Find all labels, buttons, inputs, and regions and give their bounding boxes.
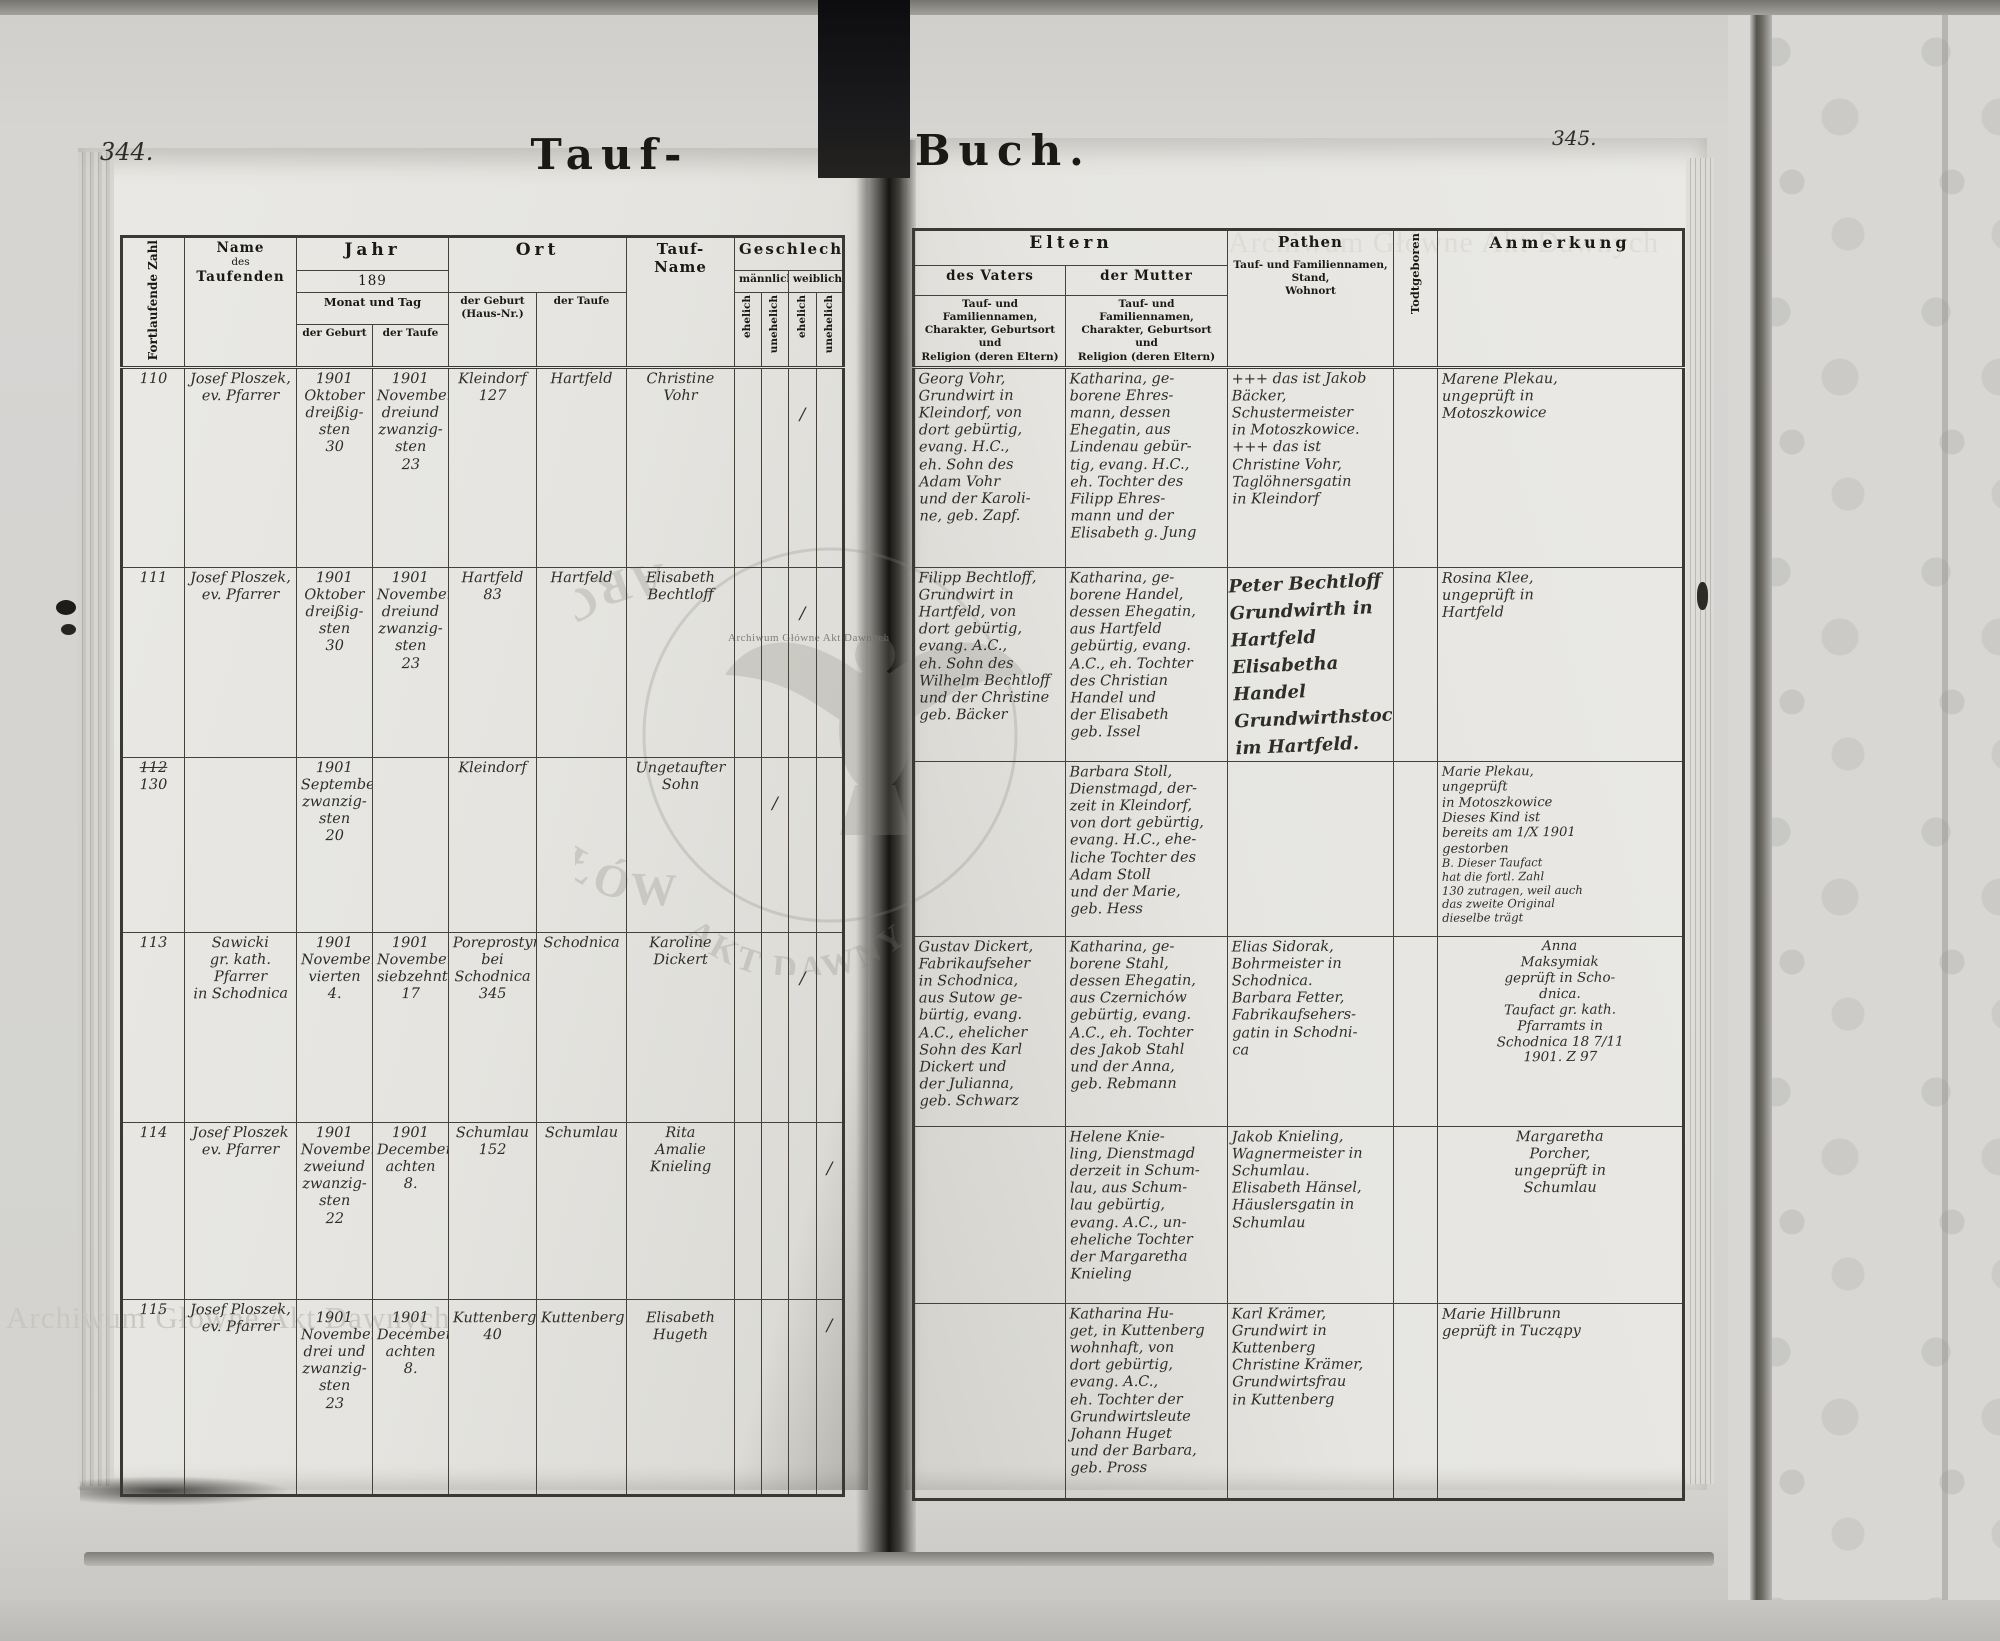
cell-ort-taufe: Schumlau	[537, 1123, 627, 1300]
right-page-number: 345.	[1552, 126, 1597, 150]
cell-ort-taufe: Schodnica	[537, 933, 627, 1123]
cell-vater: Filipp Bechtloff, Grundwirt in Hartfeld,…	[914, 567, 1066, 761]
cell-m-unehelich	[762, 933, 789, 1123]
cell-pathen: Karl Krämer, Grundwirt in Kuttenberg Chr…	[1228, 1303, 1394, 1499]
col-header-geburt-datum: der Geburt	[297, 325, 373, 368]
cell-w-ehelich: /	[789, 368, 817, 568]
table-row: 112 130 1901 September zwanzig- sten 20 …	[122, 758, 844, 933]
scan-edge-line	[1750, 0, 1772, 1641]
table-row: Barbara Stoll, Dienstmagd, der- zeit in …	[914, 761, 1684, 936]
table-row: Helene Knie- ling, Dienstmagd derzeit in…	[914, 1126, 1684, 1303]
cell-name: Josef Ploszek, ev. Pfarrer	[185, 568, 297, 758]
cell-todtgeboren	[1394, 367, 1438, 567]
cell-anmerkung: Marie Hillbrunn geprüft in Tucząpy	[1438, 1303, 1684, 1499]
cell-w-ehelich	[789, 1300, 817, 1496]
scan-bottom-band	[0, 1600, 2000, 1641]
left-page-edges	[78, 152, 114, 1486]
cell-anmerkung: Anna Maksymiak geprüft in Scho- dnica. T…	[1438, 936, 1684, 1126]
table-row: Katharina Hu- get, in Kuttenberg wohnhaf…	[914, 1303, 1684, 1499]
cell-ort-taufe: Hartfeld	[537, 568, 627, 758]
cell-w-unehelich	[817, 933, 844, 1123]
cell-taufname: Elisabeth Hugeth	[627, 1300, 735, 1496]
table-row: 111 Josef Ploszek, ev. Pfarrer 1901 Okto…	[122, 568, 844, 758]
cell-number: 114	[122, 1123, 185, 1300]
cell-geburt-datum: 1901 November zweiund zwanzig- sten 22	[297, 1123, 373, 1300]
cell-name: Sawicki gr. kath. Pfarrer in Schodnica	[185, 933, 297, 1123]
book-title-left: Tauf-	[500, 130, 720, 179]
cell-mutter: Katharina, ge- borene Ehres- mann, desse…	[1066, 367, 1228, 567]
cell-geburt-datum: 1901 Oktober dreißig- sten 30	[297, 368, 373, 568]
col-header-name: Name des Taufenden	[185, 237, 297, 368]
book-title-right: Buch.	[915, 126, 1135, 175]
col-header-maennlich: männlich	[735, 271, 789, 293]
cell-anmerkung: Margaretha Porcher, ungeprüft in Schumla…	[1438, 1126, 1684, 1303]
cell-anmerkung: Marie Plekau, ungeprüft in Motoszkowice …	[1438, 761, 1684, 936]
cell-vater: Gustav Dickert, Fabrikaufseher in Schodn…	[914, 936, 1066, 1126]
col-header-pathen: Pathen Tauf- und Familiennamen, Stand, W…	[1228, 230, 1394, 368]
col-header-w-ehelich: ehelich	[789, 293, 817, 368]
col-header-mutter-sub: Tauf- und Familiennamen, Charakter, Gebu…	[1066, 296, 1228, 368]
cell-name: Josef Ploszek, ev. Pfarrer	[185, 1300, 297, 1496]
cell-m-unehelich: /	[762, 758, 789, 933]
cell-todtgeboren	[1394, 567, 1438, 761]
register-table-right: Eltern Pathen Tauf- und Familiennamen, S…	[912, 228, 1685, 1501]
cell-name	[185, 758, 297, 933]
cell-taufe-datum	[373, 758, 449, 933]
right-page-edges	[1686, 158, 1714, 1484]
ink-blot	[56, 600, 76, 615]
cell-m-ehelich	[735, 368, 762, 568]
cell-mutter: Katharina, ge- borene Handel, dessen Ehe…	[1066, 567, 1228, 761]
cell-w-ehelich	[789, 758, 817, 933]
cell-vater	[914, 1303, 1066, 1499]
register-table-left: Fortlaufende Zahl Name des Taufenden Jah…	[120, 235, 845, 1497]
table-row: 110 Josef Ploszek, ev. Pfarrer 1901 Okto…	[122, 368, 844, 568]
cell-taufe-datum: 1901 November siebzehnten 17	[373, 933, 449, 1123]
cell-geburt-datum: 1901 Oktober dreißig- sten 30	[297, 568, 373, 758]
cell-number: 111	[122, 568, 185, 758]
cell-ort-geburt: Hartfeld 83	[449, 568, 537, 758]
cell-taufe-datum: 1901 November dreiund zwanzig- sten 23	[373, 368, 449, 568]
table-row: 115 Josef Ploszek, ev. Pfarrer 1901 Nove…	[122, 1300, 844, 1496]
cell-ort-geburt: Kleindorf	[449, 758, 537, 933]
cell-w-ehelich: /	[789, 568, 817, 758]
cell-taufe-datum: 1901 November dreiund zwanzig- sten 23	[373, 568, 449, 758]
cell-w-unehelich	[817, 368, 844, 568]
cell-m-ehelich	[735, 1300, 762, 1496]
col-header-monat-tag: Monat und Tag	[297, 293, 449, 325]
cell-taufname: Ungetaufter Sohn	[627, 758, 735, 933]
col-header-taufname: Tauf-Name	[627, 237, 735, 368]
cell-pathen: Elias Sidorak, Bohrmeister in Schodnica.…	[1228, 936, 1394, 1126]
cell-todtgeboren	[1394, 761, 1438, 936]
cell-vater: Georg Vohr, Grundwirt in Kleindorf, von …	[914, 367, 1066, 567]
cell-w-unehelich: /	[817, 1300, 844, 1496]
scan-top-band	[0, 0, 2000, 15]
col-header-anmerkung: Anmerkung	[1438, 230, 1684, 368]
cell-w-unehelich	[817, 758, 844, 933]
table-row: 114 Josef Ploszek ev. Pfarrer 1901 Novem…	[122, 1123, 844, 1300]
cell-w-ehelich	[789, 1123, 817, 1300]
cell-w-unehelich	[817, 568, 844, 758]
cell-vater	[914, 761, 1066, 936]
cell-ort-taufe	[537, 758, 627, 933]
cell-taufname: Rita Amalie Knieling	[627, 1123, 735, 1300]
cell-todtgeboren	[1394, 1303, 1438, 1499]
cell-number: 110	[122, 368, 185, 568]
col-header-mutter: der Mutter	[1066, 266, 1228, 296]
cell-name: Josef Ploszek ev. Pfarrer	[185, 1123, 297, 1300]
left-page-number: 344.	[100, 138, 153, 166]
col-header-jahr-year: 189	[297, 271, 449, 293]
cell-taufname: Karoline Dickert	[627, 933, 735, 1123]
cell-m-ehelich	[735, 758, 762, 933]
scanned-baptism-register: { "page": { "left_page_number": "344.", …	[0, 0, 2000, 1641]
col-header-geschlecht: Geschlecht	[735, 237, 844, 271]
col-header-ort: Ort	[449, 237, 627, 293]
cell-m-ehelich	[735, 1123, 762, 1300]
cell-mutter: Barbara Stoll, Dienstmagd, der- zeit in …	[1066, 761, 1228, 936]
cell-name: Josef Ploszek, ev. Pfarrer	[185, 368, 297, 568]
cell-mutter: Katharina Hu- get, in Kuttenberg wohnhaf…	[1066, 1303, 1228, 1499]
cell-m-unehelich	[762, 368, 789, 568]
cell-taufe-datum: 1901 December achten 8.	[373, 1123, 449, 1300]
col-header-m-ehelich: ehelich	[735, 293, 762, 368]
table-row: 113 Sawicki gr. kath. Pfarrer in Schodni…	[122, 933, 844, 1123]
cell-ort-taufe: Kuttenberg	[537, 1300, 627, 1496]
table-row: Georg Vohr, Grundwirt in Kleindorf, von …	[914, 367, 1684, 567]
cell-number: 113	[122, 933, 185, 1123]
table-row: Gustav Dickert, Fabrikaufseher in Schodn…	[914, 936, 1684, 1126]
col-header-weiblich: weiblich	[789, 271, 844, 293]
cell-taufname: Elisabeth Bechtloff	[627, 568, 735, 758]
cell-ort-geburt: Kuttenberg 40	[449, 1300, 537, 1496]
cell-pathen: Peter Bechtloff Grundwirth in Hartfeld E…	[1228, 567, 1394, 761]
col-header-m-unehelich: unehelich	[762, 293, 789, 368]
cell-m-ehelich	[735, 933, 762, 1123]
cell-w-ehelich: /	[789, 933, 817, 1123]
cell-w-unehelich: /	[817, 1123, 844, 1300]
col-header-eltern: Eltern	[914, 230, 1228, 266]
cell-todtgeboren	[1394, 936, 1438, 1126]
cell-pathen	[1228, 761, 1394, 936]
col-header-ort-geburt: der Geburt (Haus-Nr.)	[449, 293, 537, 368]
cell-m-unehelich	[762, 1300, 789, 1496]
cell-geburt-datum: 1901 September zwanzig- sten 20	[297, 758, 373, 933]
col-header-vater: des Vaters	[914, 266, 1066, 296]
cell-ort-geburt: Schumlau 152	[449, 1123, 537, 1300]
col-header-number: Fortlaufende Zahl	[122, 237, 185, 368]
book-bottom-shadow	[84, 1552, 1714, 1566]
col-header-taufe-datum: der Taufe	[373, 325, 449, 368]
cell-geburt-datum: 1901 November drei und zwanzig- sten 23	[297, 1300, 373, 1496]
col-header-todtgeboren: Todtgeboren	[1394, 230, 1438, 368]
cell-vater	[914, 1126, 1066, 1303]
cell-geburt-datum: 1901 November vierten 4.	[297, 933, 373, 1123]
col-header-ort-taufe: der Taufe	[537, 293, 627, 368]
cell-m-ehelich	[735, 568, 762, 758]
scan-edge-line-faint	[1942, 0, 1948, 1641]
col-header-vater-sub: Tauf- und Familiennamen, Charakter, Gebu…	[914, 296, 1066, 368]
table-row: Filipp Bechtloff, Grundwirt in Hartfeld,…	[914, 567, 1684, 761]
cell-number: 115	[122, 1300, 185, 1496]
cell-anmerkung: Rosina Klee, ungeprüft in Hartfeld	[1438, 567, 1684, 761]
cell-taufname: Christine Vohr	[627, 368, 735, 568]
cell-anmerkung: Marene Plekau, ungeprüft in Motoszkowice	[1438, 367, 1684, 567]
col-header-jahr: Jahr	[297, 237, 449, 271]
ink-blot	[61, 624, 76, 635]
cell-m-unehelich	[762, 1123, 789, 1300]
cell-ort-geburt: Kleindorf 127	[449, 368, 537, 568]
ink-blot	[1697, 582, 1708, 610]
cell-mutter: Katharina, ge- borene Stahl, dessen Eheg…	[1066, 936, 1228, 1126]
cell-number: 112 130	[122, 758, 185, 933]
cell-ort-taufe: Hartfeld	[537, 368, 627, 568]
cell-m-unehelich	[762, 568, 789, 758]
cell-ort-geburt: Poreprostyna bei Schodnica 345	[449, 933, 537, 1123]
col-header-w-unehelich: unehelich	[817, 293, 844, 368]
cell-pathen: +++ das ist Jakob Bäcker, Schustermeiste…	[1228, 367, 1394, 567]
cell-pathen: Jakob Knieling, Wagnermeister in Schumla…	[1228, 1126, 1394, 1303]
cell-todtgeboren	[1394, 1126, 1438, 1303]
cell-mutter: Helene Knie- ling, Dienstmagd derzeit in…	[1066, 1126, 1228, 1303]
cell-taufe-datum: 1901 December achten 8.	[373, 1300, 449, 1496]
spine-shadow-top	[818, 0, 910, 178]
